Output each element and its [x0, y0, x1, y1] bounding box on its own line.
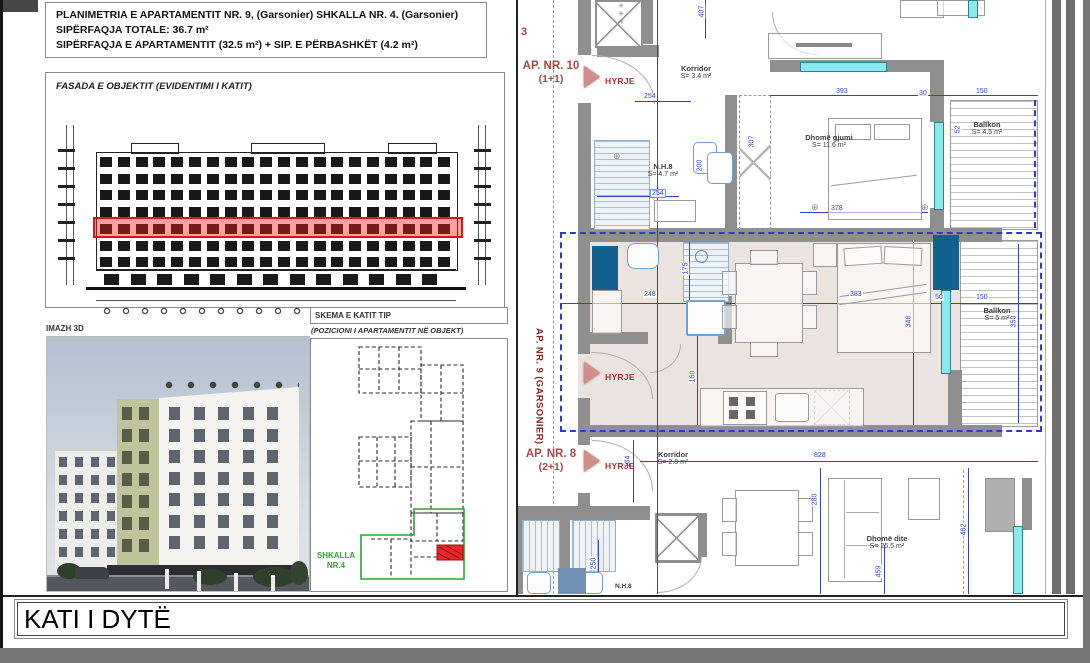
photo-bollard — [165, 571, 169, 589]
chair — [722, 271, 737, 295]
photo-car — [75, 567, 109, 579]
shower-area — [522, 520, 560, 572]
dimension: 254 — [643, 93, 657, 100]
window — [1013, 526, 1023, 594]
dimension: 50 — [934, 294, 944, 301]
ap9-label: AP. NR. 9 (GARSONIER) — [533, 328, 544, 446]
dining-table — [735, 263, 803, 343]
photo-main-building-right-face — [159, 387, 299, 571]
dimension-line — [968, 468, 969, 594]
photo-roof-garden — [159, 379, 299, 389]
dimension-line — [633, 440, 634, 502]
toilet-fixture — [627, 243, 659, 269]
room-label-nh8-8: N.H.8 — [615, 583, 632, 591]
photo-shrub — [290, 561, 308, 585]
wardrobe — [739, 95, 771, 230]
ap8-label: AP. NR. 8(2+1) — [519, 448, 583, 474]
dimension: 200 — [696, 159, 703, 173]
room-label-nh8-10: N.H.8S= 4.7 m² — [635, 162, 691, 180]
footer-title-box: KATI I DYTË — [14, 599, 1068, 639]
image3d-label: IMAZH 3D — [46, 324, 84, 333]
photo-bollard — [234, 575, 238, 591]
shaft — [933, 235, 959, 290]
chair — [722, 305, 737, 329]
shower-area — [594, 140, 650, 230]
shower-tray — [686, 300, 726, 336]
dimension: 350 — [1010, 315, 1017, 329]
chair — [802, 305, 817, 329]
tv — [796, 43, 852, 47]
dimension: 307 — [748, 135, 755, 149]
sheet-left-border — [0, 0, 3, 648]
drawing-sheet: PLANIMETRIA E APARTAMENTIT NR. 9, (Garso… — [0, 0, 1090, 663]
room-label-korridor10: KorridorS= 3.4 m² — [665, 64, 727, 82]
dimension-line — [820, 468, 821, 594]
facade-panel: FASADA E OBJEKTIT (EVIDENTIMI I KATIT) — [45, 72, 505, 308]
keyplan-shkalla-outline — [361, 509, 464, 579]
photo-main-building-left-face — [117, 399, 159, 571]
dimension: 250 — [590, 557, 597, 571]
armchair — [985, 478, 1015, 532]
wall — [578, 103, 591, 230]
ap10-label: AP. NR. 10(1+1) — [519, 60, 583, 86]
appliance — [707, 152, 733, 184]
dimension: 150 — [975, 88, 989, 95]
title-line-2: SIPËRFAQJA TOTALE: 36.7 m² — [56, 24, 209, 36]
section-bar-line — [1045, 0, 1046, 594]
door-arc — [657, 556, 702, 593]
pillow — [874, 124, 910, 140]
wall — [948, 370, 962, 425]
sheet-bottom-band — [0, 648, 1090, 663]
sofa-line — [846, 512, 879, 513]
dimension: 383 — [849, 291, 863, 298]
keyplan-subtitle: (POZICIONI I APARTAMENTIT NË OBJEKT) — [311, 326, 463, 335]
keyplan-shkalla-label: SHKALLANR.4 — [313, 551, 359, 572]
entry-arrow-ap9 — [584, 362, 600, 384]
facade-building — [96, 152, 458, 271]
dimension-line — [597, 196, 679, 197]
dimension: 248 — [643, 291, 657, 298]
section-bar — [1052, 0, 1061, 594]
window — [934, 122, 944, 210]
wall — [578, 242, 590, 354]
sink-counter — [592, 290, 622, 334]
floor-plan: 3 407 AP. NR. 10(1+1) HYRJE ✳✳✳ Korridor… — [517, 0, 1083, 594]
grid-label-3: 3 — [521, 26, 527, 39]
keyplan-highlight-cell — [437, 545, 463, 560]
section-bar — [1066, 0, 1075, 594]
wall — [578, 437, 590, 445]
dimension-line — [657, 0, 658, 594]
entry-arrow-ap8 — [584, 450, 600, 472]
dimension: 160 — [689, 370, 696, 384]
plan-bottom-line — [3, 595, 1083, 597]
dimension: 30 — [918, 90, 928, 97]
stair-marks: ✳✳✳ — [617, 2, 624, 26]
sheet-corner-block — [0, 0, 38, 12]
dimension-line — [635, 101, 691, 102]
facade-level-ticks-right — [474, 149, 492, 279]
facade-label: FASADA E OBJEKTIT (EVIDENTIMI I KATIT) — [56, 81, 252, 92]
kitchen-sink — [775, 393, 809, 422]
dimension: 150 — [975, 294, 989, 301]
dimension-line — [884, 545, 885, 594]
facade-ground-floor — [96, 269, 456, 288]
wall — [930, 208, 944, 230]
window — [800, 62, 887, 72]
dining-table — [735, 490, 799, 566]
wall — [1022, 478, 1032, 530]
dimension: 254 — [650, 189, 666, 198]
chair — [722, 532, 737, 556]
entry-label-ap9: HYRJE — [605, 372, 635, 382]
chair — [798, 532, 813, 556]
entry-label-ap10: HYRJE — [605, 76, 635, 86]
keyplan-title-box: SKEMA E KATIT TIP — [310, 307, 508, 324]
shaft — [592, 246, 618, 290]
photo-bollard — [197, 573, 201, 591]
room-label-bedroom10: Dhomë gjumiS= 11.6 m² — [789, 133, 869, 151]
chair — [750, 342, 778, 357]
facade-level-ticks-left — [58, 149, 76, 279]
chair — [802, 271, 817, 295]
dimension: 280 — [811, 493, 818, 507]
red-floor-highlight — [93, 217, 463, 238]
photo-panel — [46, 336, 310, 592]
sofa — [828, 478, 882, 582]
sheet-title: KATI I DYTË — [18, 604, 171, 635]
grid-line — [553, 0, 554, 594]
window — [941, 290, 951, 374]
dimension: 407 — [698, 5, 705, 19]
coffee-table — [908, 478, 940, 520]
window — [968, 0, 978, 18]
dimension: 378 — [830, 205, 844, 212]
toilet-fixture — [527, 572, 551, 594]
dimension: 175 — [682, 262, 689, 276]
sofa-line — [844, 480, 845, 578]
dimension: 828 — [813, 452, 827, 459]
wall — [578, 0, 591, 55]
entry-arrow-ap10 — [584, 66, 600, 88]
title-line-1: PLANIMETRIA E APARTAMENTIT NR. 9, (Garso… — [56, 9, 458, 21]
dimension: 459 — [875, 565, 882, 579]
shaft-steel — [558, 568, 586, 594]
facade-ground-line — [86, 287, 466, 290]
wall — [578, 398, 590, 425]
keyplan-panel: SHKALLANR.4 — [310, 338, 508, 592]
sink-counter — [654, 200, 696, 222]
title-line-3: SIPËRFAQJA E APARTAMENTIT (32.5 m²) + SI… — [56, 39, 418, 51]
dimension-line — [1018, 244, 1019, 423]
dimension: 462 — [960, 523, 967, 537]
photo-bollard — [271, 577, 275, 591]
wall — [517, 506, 650, 520]
chair — [722, 498, 737, 522]
dimension: 52 — [954, 125, 961, 135]
balcony-ap9 — [960, 240, 1038, 427]
nightstand — [813, 243, 837, 267]
pillow — [843, 246, 882, 267]
dimension: 393 — [835, 88, 849, 95]
wall — [930, 60, 944, 122]
dimension: 346 — [905, 315, 912, 329]
title-block: PLANIMETRIA E APARTAMENTIT NR. 9, (Garso… — [45, 2, 487, 58]
shower-head — [695, 250, 708, 263]
keyplan-title: SKEMA E KATIT TIP — [315, 311, 391, 320]
column-marker: ⊕ — [921, 203, 929, 212]
pillow — [884, 246, 923, 266]
drain-mark: ⊕ — [613, 152, 621, 161]
entry-label-ap8: HYRJE — [605, 461, 635, 471]
room-label-living8: Dhomë diteS= 25.5 m² — [847, 534, 927, 552]
sheet-right-band — [1083, 0, 1090, 663]
dimension-line — [770, 95, 1038, 96]
room-label-balcony10: BallkonS= 4.5 m² — [959, 120, 1015, 138]
balcony-edge-dashed — [1034, 100, 1036, 228]
room-label-korridor8: KorridorS= 2.8 m² — [643, 450, 703, 468]
chair — [750, 250, 778, 265]
column-marker: ⊕ — [811, 203, 819, 212]
plan-divider-line — [516, 0, 518, 596]
stove — [723, 391, 767, 425]
